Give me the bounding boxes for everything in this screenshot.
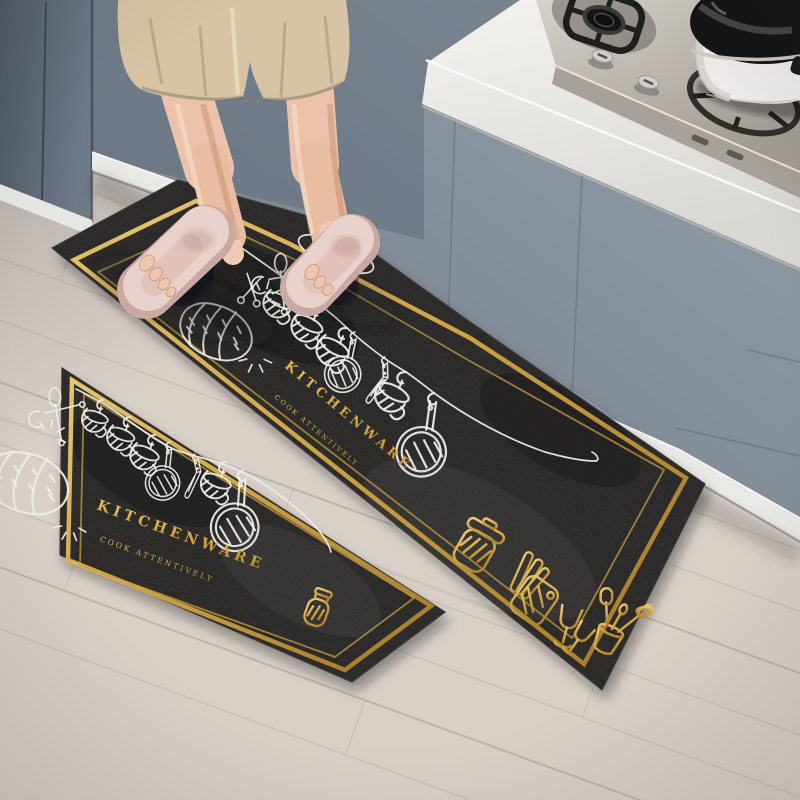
kitchen-scene: KITCHENWARE COOK ATTENTIVELY xyxy=(0,0,800,800)
kitchen-photo: KITCHENWARE COOK ATTENTIVELY xyxy=(0,0,800,800)
vignette xyxy=(0,0,800,800)
